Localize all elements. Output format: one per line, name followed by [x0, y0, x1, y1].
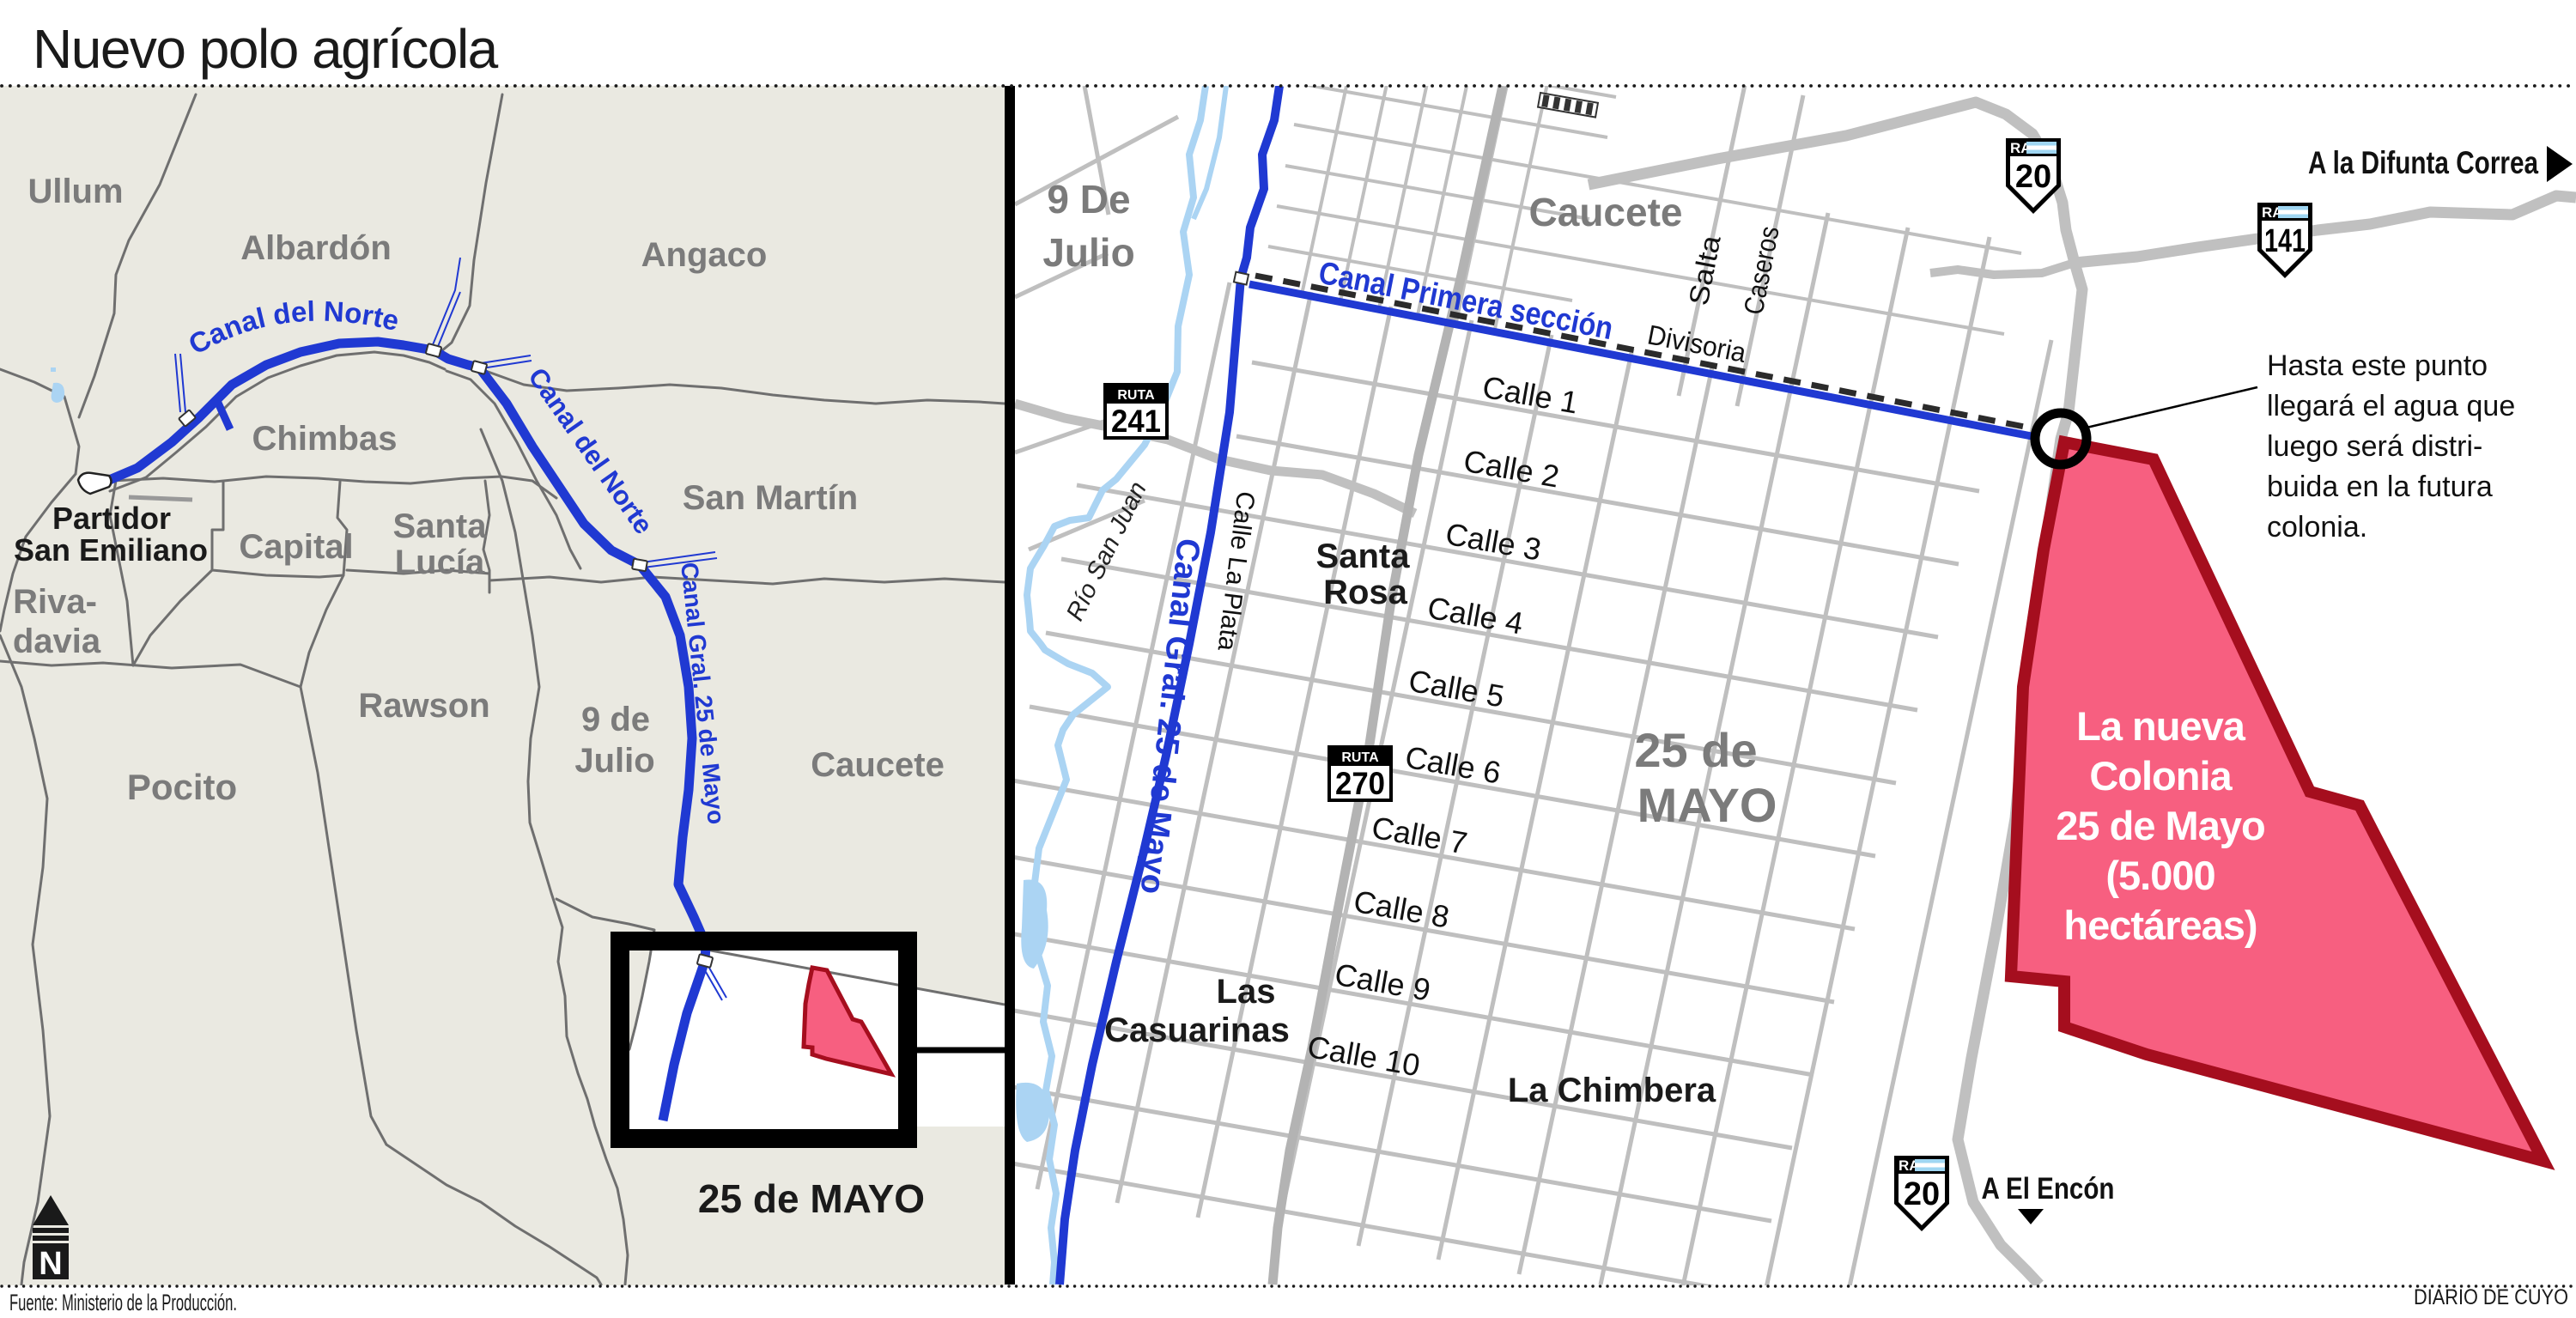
svg-text:luego será distri-: luego será distri- [2267, 430, 2482, 463]
svg-text:Rawson: Rawson [358, 687, 489, 725]
svg-text:Santa: Santa [393, 507, 488, 545]
svg-text:buida en la futura: buida en la futura [2267, 471, 2493, 503]
svg-text:San Emiliano: San Emiliano [14, 532, 208, 568]
svg-text:llegará el agua que: llegará el agua que [2267, 390, 2515, 422]
svg-text:(5.000: (5.000 [2105, 853, 2215, 898]
svg-text:Chimbas: Chimbas [252, 420, 398, 458]
svg-text:RUTA: RUTA [1117, 388, 1155, 403]
svg-text:colonia.: colonia. [2267, 511, 2367, 544]
svg-text:MAYO: MAYO [1637, 778, 1777, 832]
svg-text:La Chimbera: La Chimbera [1508, 1072, 1716, 1109]
svg-text:Hasta este punto: Hasta este punto [2267, 349, 2488, 382]
svg-text:Caucete: Caucete [811, 746, 945, 784]
svg-text:Santa: Santa [1316, 538, 1411, 575]
svg-text:20: 20 [1904, 1176, 1940, 1212]
svg-text:270: 270 [1335, 766, 1385, 801]
svg-text:Lucía: Lucía [395, 544, 485, 581]
svg-text:Nuevo polo agrícola: Nuevo polo agrícola [33, 18, 499, 80]
svg-text:Albardón: Albardón [240, 229, 392, 267]
svg-text:RUTA: RUTA [1341, 750, 1379, 765]
svg-text:9 de: 9 de [581, 701, 650, 738]
svg-text:Las: Las [1217, 973, 1276, 1011]
svg-text:A El Encón: A El Encón [1982, 1172, 2115, 1206]
svg-text:25 de MAYO: 25 de MAYO [698, 1176, 925, 1221]
svg-text:N: N [39, 1246, 62, 1282]
svg-text:Capital: Capital [239, 528, 353, 566]
svg-text:Pocito: Pocito [127, 767, 237, 807]
svg-text:Casuarinas: Casuarinas [1104, 1011, 1290, 1049]
svg-text:141: 141 [2264, 223, 2306, 259]
svg-text:Angaco: Angaco [641, 236, 768, 274]
svg-text:25 de: 25 de [1634, 723, 1757, 777]
svg-text:Partidor: Partidor [52, 501, 171, 536]
svg-text:Caucete: Caucete [1529, 190, 1683, 234]
svg-text:A la Difunta Correa: A la Difunta Correa [2308, 145, 2538, 180]
svg-text:Colonia: Colonia [2089, 753, 2233, 799]
svg-text:Rosa: Rosa [1323, 574, 1408, 611]
svg-text:25 de Mayo: 25 de Mayo [2056, 803, 2264, 848]
svg-text:Fuente: Ministerio de la Produ: Fuente: Ministerio de la Producción. [9, 1290, 237, 1315]
svg-text:Julio: Julio [1042, 230, 1134, 275]
svg-text:241: 241 [1111, 404, 1161, 439]
svg-text:Julio: Julio [574, 742, 654, 780]
svg-text:20: 20 [2015, 159, 2051, 195]
svg-text:DIARIO DE CUYO: DIARIO DE CUYO [2414, 1285, 2568, 1309]
svg-text:Ullum: Ullum [27, 173, 123, 210]
svg-text:La nueva: La nueva [2076, 703, 2246, 749]
svg-text:davia: davia [13, 623, 101, 660]
svg-text:San Martín: San Martín [683, 479, 858, 517]
svg-text:9 De: 9 De [1047, 177, 1130, 222]
svg-text:hectáreas): hectáreas) [2063, 902, 2257, 948]
svg-text:Riva-: Riva- [13, 583, 97, 621]
